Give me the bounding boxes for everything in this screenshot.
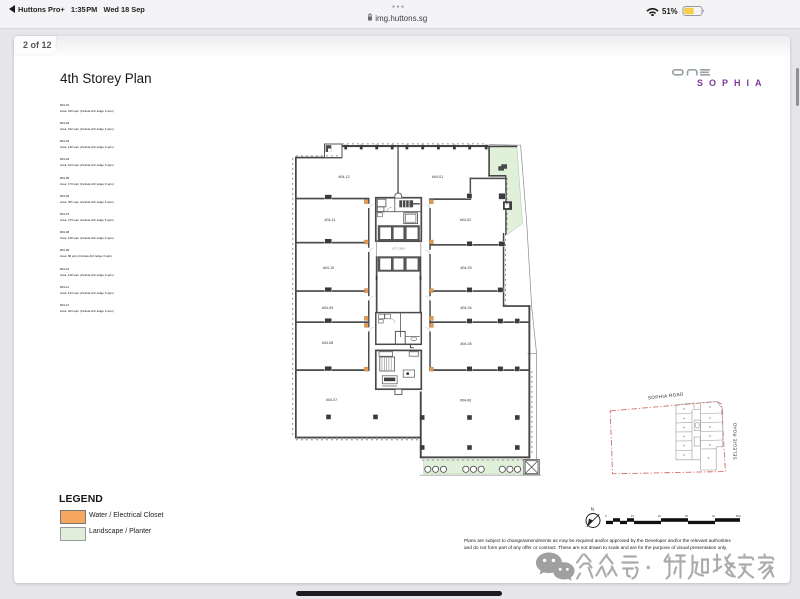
svg-text:#04-06: #04-06 xyxy=(460,399,471,403)
svg-text:#04-09: #04-09 xyxy=(322,306,333,310)
svg-text:LIFT LOBBY: LIFT LOBBY xyxy=(392,247,406,250)
svg-text:SELEGIE ROAD: SELEGIE ROAD xyxy=(733,422,738,460)
svg-text:#04-12: #04-12 xyxy=(338,175,349,179)
svg-text:#04-02: #04-02 xyxy=(460,218,471,222)
svg-text:40: 40 xyxy=(712,514,715,518)
svg-text:#04-05: #04-05 xyxy=(460,342,471,346)
svg-text:#04-08: #04-08 xyxy=(322,341,333,345)
svg-text:#04-07: #04-07 xyxy=(326,398,337,402)
svg-text:#04-03: #04-03 xyxy=(460,266,471,270)
svg-text:20: 20 xyxy=(658,514,661,518)
svg-text:0: 0 xyxy=(605,514,607,518)
svg-text:#04-10: #04-10 xyxy=(323,266,334,270)
svg-text:SOPHIA ROAD: SOPHIA ROAD xyxy=(648,391,685,400)
svg-text:30: 30 xyxy=(685,514,688,518)
svg-text:10: 10 xyxy=(631,514,634,518)
svg-text:#04-11: #04-11 xyxy=(325,218,336,222)
svg-text:#04-04: #04-04 xyxy=(460,306,471,310)
svg-text:50m: 50m xyxy=(736,514,741,518)
svg-text:#04-01: #04-01 xyxy=(432,175,443,179)
svg-text:N: N xyxy=(591,507,594,512)
